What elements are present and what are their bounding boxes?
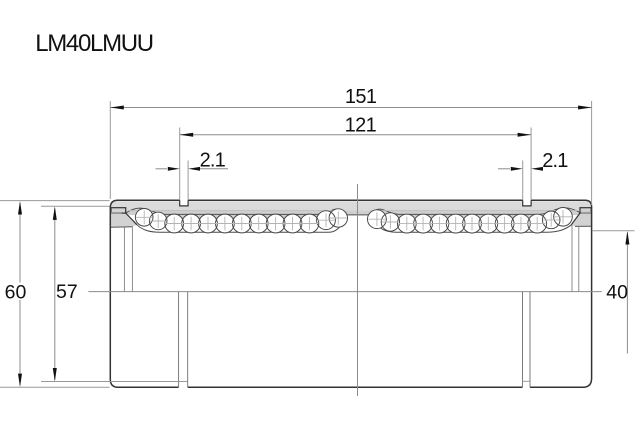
svg-text:151: 151: [345, 86, 377, 108]
svg-text:60: 60: [5, 281, 27, 303]
svg-text:40: 40: [606, 282, 628, 304]
svg-text:57: 57: [56, 281, 78, 303]
svg-text:2.1: 2.1: [200, 149, 226, 171]
svg-text:2.1: 2.1: [542, 150, 568, 172]
svg-text:121: 121: [345, 115, 377, 137]
svg-text:LM40LMUU: LM40LMUU: [35, 30, 153, 57]
